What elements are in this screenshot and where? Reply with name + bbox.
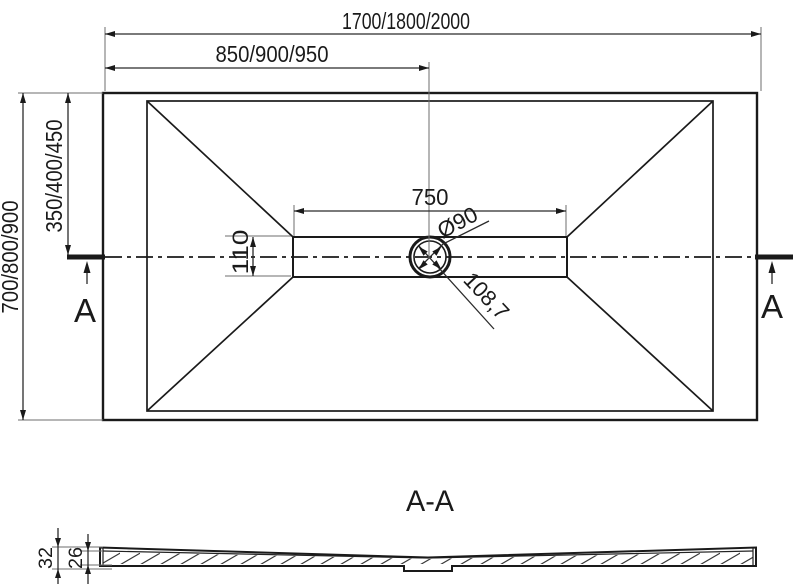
arrowhead (20, 410, 26, 420)
arrowhead (55, 538, 61, 547)
dim-width-to-drain-label: 850/900/950 (216, 41, 329, 67)
section-view: A-A 32 26 (36, 485, 756, 584)
top-view (103, 93, 757, 420)
arrowhead (556, 208, 566, 214)
arrowhead (20, 93, 26, 103)
dim-channel-length-label: 750 (412, 184, 449, 210)
arrowhead (65, 93, 71, 103)
arrowhead (105, 65, 115, 71)
section-marker-right-label: A (761, 288, 783, 325)
dimensions: 1700/1800/2000 850/900/950 700/800/900 3… (0, 8, 761, 420)
dim-width-overall-label: 1700/1800/2000 (342, 8, 470, 34)
dim-total-height-label: 32 (36, 547, 57, 569)
dim-body-height-label: 26 (66, 547, 87, 569)
arrowhead (105, 31, 115, 37)
extension-lines-top (105, 27, 761, 259)
arrowhead (55, 569, 61, 578)
dim-channel-width-label: 110 (228, 230, 253, 275)
arrowhead (432, 247, 441, 256)
arrowhead (294, 208, 304, 214)
arrowhead (419, 260, 428, 269)
arrowhead (65, 245, 71, 255)
dim-height-to-drain-label: 350/400/450 (41, 120, 67, 233)
arrowhead (419, 65, 429, 71)
shower-tray-drawing: 1700/1800/2000 850/900/950 700/800/900 3… (0, 0, 800, 584)
arrowhead (84, 261, 91, 273)
section-title: A-A (406, 485, 454, 518)
dim-drain-diagonal-label: 108,7 (459, 267, 515, 324)
section-cut-marks: A A (67, 257, 793, 329)
arrowhead (751, 31, 761, 37)
arrowhead (769, 261, 776, 273)
technical-drawing-page: 1700/1800/2000 850/900/950 700/800/900 3… (0, 0, 800, 584)
section-marker-left-label: A (74, 292, 96, 329)
dim-height-overall-label: 700/800/900 (0, 201, 23, 314)
